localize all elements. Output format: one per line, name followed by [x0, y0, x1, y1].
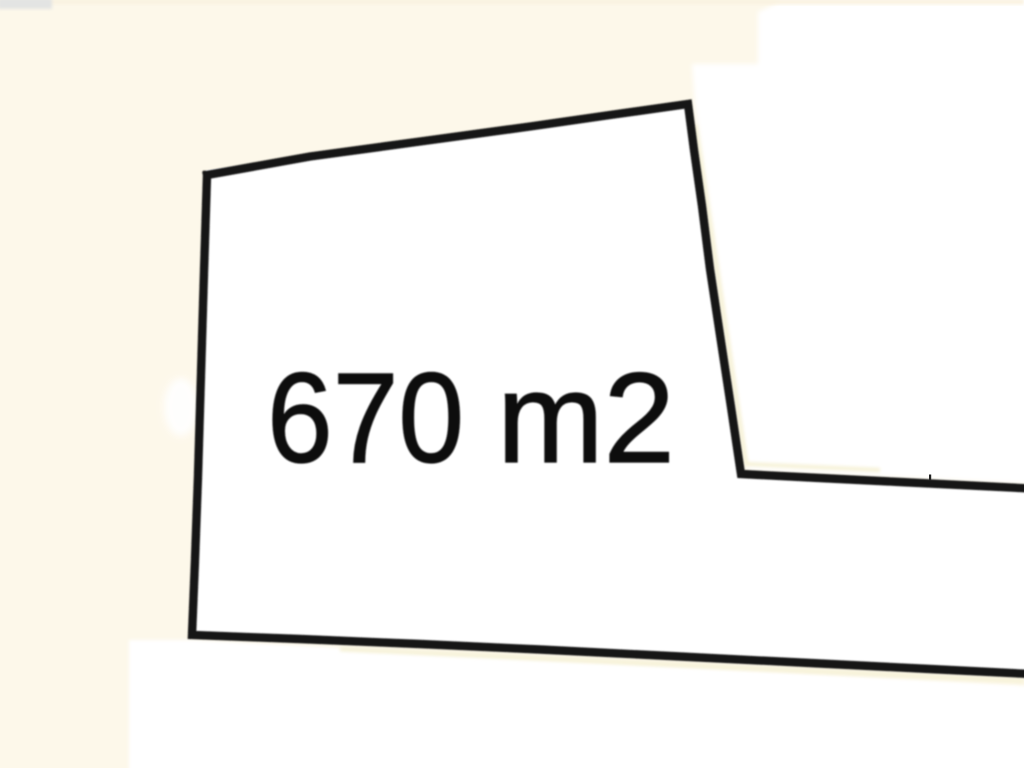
svg-text:670: 670: [267, 347, 464, 490]
svg-text:m2: m2: [497, 347, 675, 490]
